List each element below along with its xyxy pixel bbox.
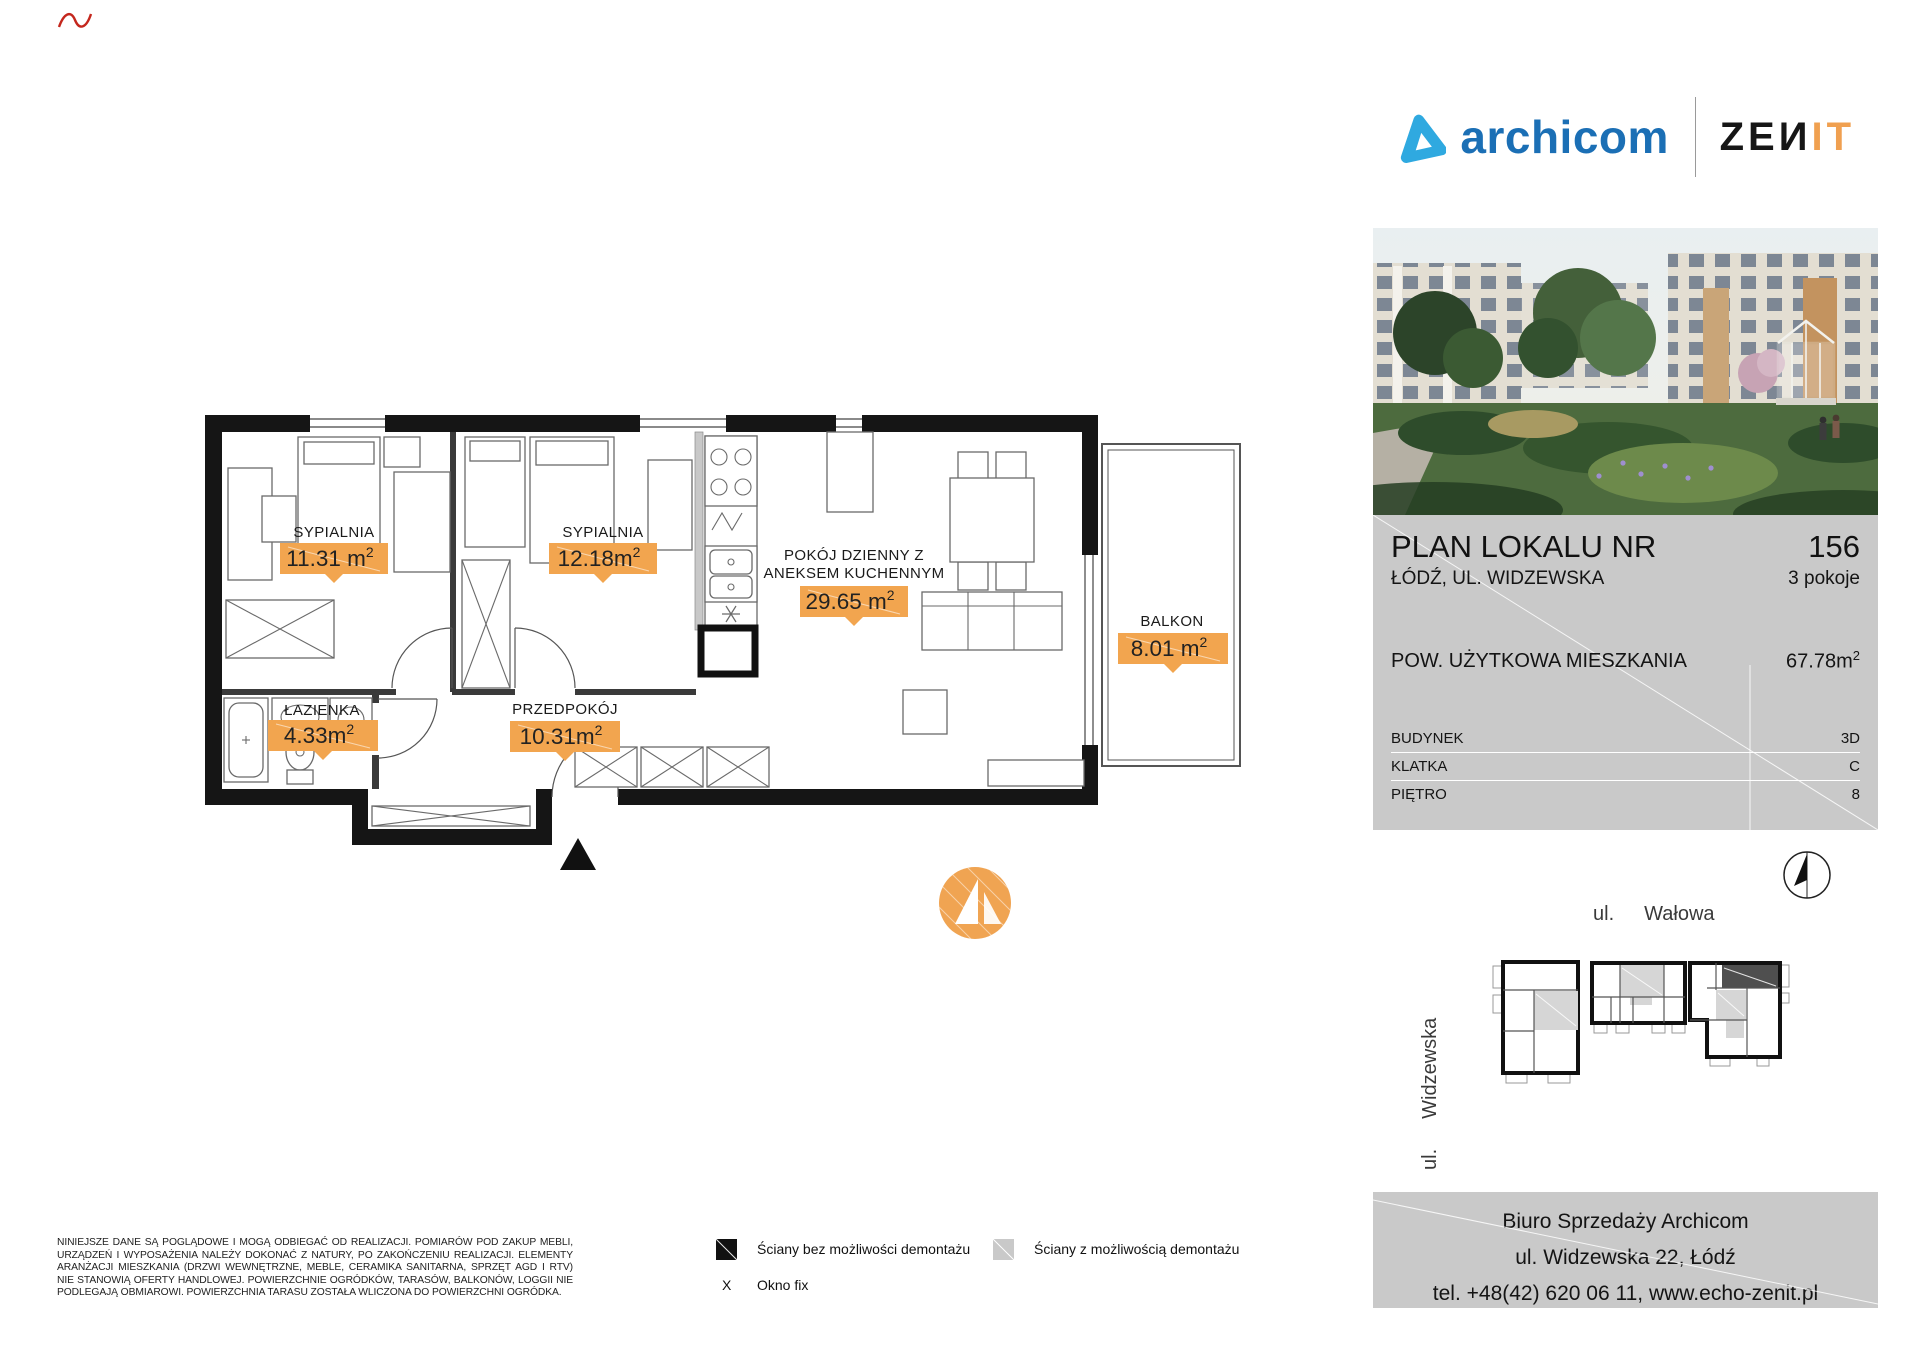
desk-symbol: [648, 460, 692, 550]
contact-box-hairline: [1373, 1192, 1878, 1308]
unit-address: ŁÓDŹ, UL. WIDZEWSKA: [1391, 568, 1604, 590]
floor-label: PIĘTRO: [1391, 786, 1447, 803]
north-compass-icon: [1784, 852, 1830, 898]
street-name: Wałowa: [1644, 903, 1714, 926]
usable-area-value: 67.78m2: [1786, 648, 1860, 674]
area-sup: 2: [887, 587, 895, 603]
red-scribble-mark: [55, 5, 99, 35]
area-sup: 2: [1200, 634, 1208, 650]
legend-window-fix-label: Okno fix: [757, 1277, 808, 1293]
area-value: 8.01 m: [1131, 636, 1200, 661]
area-sup: 2: [366, 544, 374, 560]
room-label-sypialnia-1: SYPIALNIA 11.31 m2: [280, 524, 388, 583]
cabinet-symbol: [394, 472, 450, 572]
area-badge: 29.65 m2: [805, 587, 894, 614]
legend-removable-wall-label: Ściany z możliwością demontażu: [1034, 1241, 1239, 1257]
living-room-furniture: [903, 452, 1084, 786]
room-label-pokoj-dzienny: POKÓJ DZIENNY Z ANEKSEM KUCHENNYM 29.65 …: [764, 547, 945, 626]
logo-divider: [1695, 97, 1696, 177]
area-value: 4.33m: [284, 723, 347, 748]
nightstand-symbol: [384, 437, 420, 467]
floor-value: 8: [1852, 786, 1860, 803]
legend-removable-wall-icon: [993, 1239, 1014, 1260]
room-name: SYPIALNIA: [562, 524, 643, 541]
site-building-2: [1592, 963, 1685, 1033]
street-label-widzewska: ul.Widzewska: [1419, 960, 1443, 1170]
zenit-logo-dark-part: ZEИ: [1720, 115, 1812, 159]
room-label-sypialnia-2: SYPIALNIA 12.18m2: [549, 524, 657, 583]
zenit-logo-orange-part: IT: [1811, 115, 1855, 159]
room-label-przedpokoj: PRZEDPOKÓJ 10.31m2: [510, 701, 620, 761]
room-name: SYPIALNIA: [293, 524, 374, 541]
bathtub-symbol: [224, 698, 268, 782]
site-map: [1400, 830, 1920, 1160]
area-sup: 2: [346, 721, 354, 737]
sofa-symbol: [922, 592, 1062, 650]
disclaimer-line: PODLEGAJĄ OBMIAROWI. POWIERZCHNIA TARASU…: [57, 1287, 573, 1300]
legend-solid-wall-icon: [716, 1239, 737, 1260]
area-sup: 2: [633, 544, 641, 560]
area-value: 12.18m: [558, 546, 633, 571]
hallway-wardrobes: [372, 747, 769, 826]
room-name: BALKON: [1140, 613, 1203, 630]
area-badge: 4.33m2: [284, 721, 355, 748]
dining-table-symbol: [950, 452, 1034, 590]
unit-number: 156: [1808, 529, 1860, 565]
detail-row-building: BUDYNEK 3D: [1391, 725, 1860, 751]
street-prefix: ul.: [1419, 1149, 1443, 1170]
building-label: BUDYNEK: [1391, 730, 1464, 747]
area-badge: 8.01 m2: [1131, 634, 1208, 661]
disclaimer-line: ARANŻACJI MIESZKANIA (DRZWI WEWNĘTRZNE, …: [57, 1262, 573, 1275]
building-value: 3D: [1841, 730, 1860, 747]
balcony-outline: [1102, 444, 1240, 766]
disclaimer-line: URZĄDZEŃ I WYPOSAŻENIA NALEŻY DOKONAĆ Z …: [57, 1250, 573, 1263]
area-value: 10.31m: [520, 724, 595, 749]
room-name-line1: POKÓJ DZIENNY Z: [784, 547, 924, 564]
area-badge: 12.18m2: [558, 544, 641, 571]
archicom-logo-icon: [1395, 95, 1446, 179]
area-badge: 11.31 m2: [286, 544, 374, 571]
sink-symbol: [705, 546, 757, 602]
disclaimer-line: NIE STANOWIĄ OFERTY HANDLOWEJ. POWIERZCH…: [57, 1275, 573, 1288]
staircase-value: C: [1849, 758, 1860, 775]
stove-symbol: [705, 436, 757, 506]
area-sup: 2: [595, 722, 603, 738]
archicom-logo-text: archicom: [1460, 110, 1669, 164]
wardrobe-symbol: [226, 600, 334, 658]
shaft-symbol: [701, 628, 755, 674]
disclaimer-line: NINIEJSZE DANE SĄ POGLĄDOWE I MOGĄ ODBIE…: [57, 1237, 573, 1250]
entrance-marker-triangle: [560, 838, 596, 870]
usable-area-sup: 2: [1853, 648, 1860, 663]
street-name: Widzewska: [1419, 1018, 1443, 1119]
chair-symbol: [262, 496, 296, 542]
unit-info-panel: PLAN LOKALU NR 156 ŁÓDŹ, UL. WIDZEWSKA 3…: [1373, 515, 1878, 830]
street-prefix: ul.: [1593, 903, 1614, 926]
side-table-symbol: [903, 690, 947, 734]
detail-row-floor: PIĘTRO 8: [1391, 781, 1860, 807]
staircase-label: KLATKA: [1391, 758, 1447, 775]
room-name: PRZEDPOKÓJ: [512, 701, 618, 718]
header-logos: archicom ZEИIT: [1395, 92, 1855, 182]
area-value: 29.65 m: [805, 589, 886, 614]
site-building-1: [1493, 962, 1578, 1083]
disclaimer-text: NINIEJSZE DANE SĄ POGLĄDOWE I MOGĄ ODBIE…: [57, 1237, 573, 1300]
area-value: 11.31 m: [286, 546, 366, 571]
sales-office-box: Biuro Sprzedaży Archicom ul. Widzewska 2…: [1373, 1192, 1878, 1308]
sail-compass-logo: [938, 866, 1012, 940]
detail-row-staircase: KLATKA C: [1391, 753, 1860, 779]
usable-area-number: 67.78m: [1786, 651, 1853, 673]
room-name-line2: ANEKSEM KUCHENNYM: [764, 565, 945, 582]
zenit-logo: ZEИIT: [1720, 115, 1855, 160]
street-label-walowa: ul.Wałowa: [1593, 903, 1715, 926]
kitchen-island-symbol: [827, 432, 873, 512]
legend-window-fix-symbol: X: [722, 1277, 731, 1293]
room-name: ŁAZIENKA: [284, 702, 360, 719]
floor-plan: SYPIALNIA 11.31 m2 SYPIALNIA 12.18m2 POK…: [160, 395, 1280, 895]
legend-solid-wall-label: Ściany bez możliwości demontażu: [757, 1241, 970, 1257]
wardrobe-symbol: [462, 560, 510, 688]
panel-title: PLAN LOKALU NR: [1391, 529, 1656, 565]
usable-area-label: POW. UŻYTKOWA MIESZKANIA: [1391, 650, 1687, 673]
room-label-balkon: BALKON 8.01 m2: [1118, 613, 1228, 673]
removable-wall: [695, 432, 703, 630]
site-building-3: [1690, 963, 1789, 1066]
building-visualization-photo: [1373, 228, 1878, 515]
tv-cabinet-symbol: [988, 760, 1084, 786]
area-badge: 10.31m2: [520, 722, 603, 749]
rooms-count: 3 pokoje: [1788, 568, 1860, 590]
plan-sheet: archicom ZEИIT: [0, 0, 1920, 1358]
